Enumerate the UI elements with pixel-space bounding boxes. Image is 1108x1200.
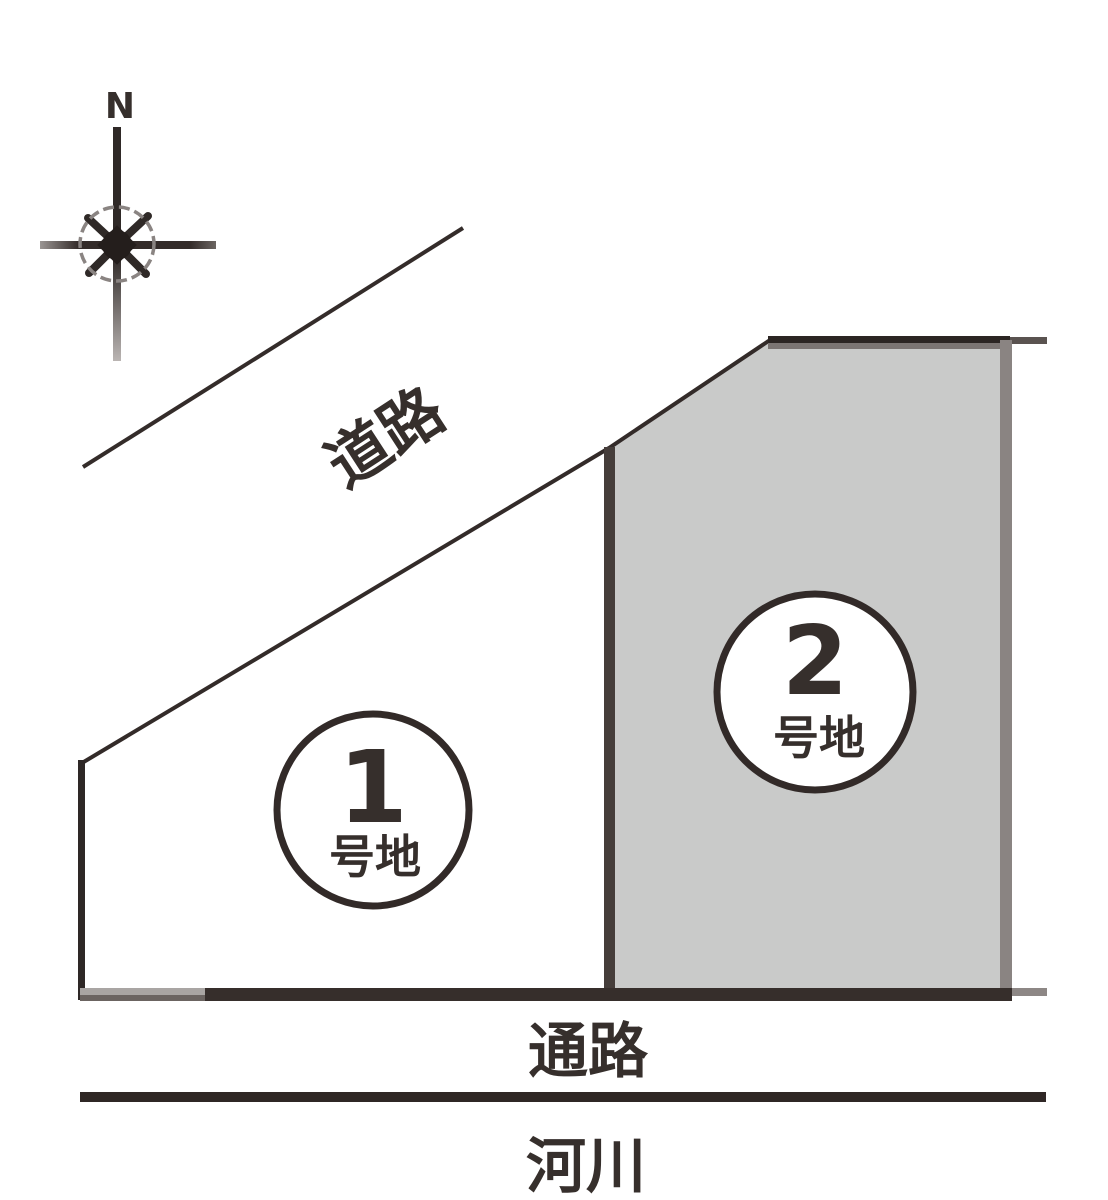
lot-layout-diagram: N 道路 xyxy=(0,0,1108,1200)
lot-1-badge: 1 号地 xyxy=(277,714,469,906)
bottom-border-overshoot xyxy=(1012,988,1047,996)
lot-2-top-border-overshoot xyxy=(1010,337,1047,344)
bottom-border-main xyxy=(205,988,1012,1001)
lot-2-right-border xyxy=(1000,340,1012,994)
bottom-border-left-dark xyxy=(80,995,210,1001)
compass-rose: N xyxy=(40,86,216,361)
lot-2-top-border xyxy=(768,336,1010,343)
compass-north-label: N xyxy=(105,86,135,127)
lot-divider-line xyxy=(604,447,615,1000)
lot-2-suffix: 号地 xyxy=(773,711,865,765)
lot-2-badge: 2 号地 xyxy=(717,594,913,790)
lot-1-number: 1 xyxy=(338,729,408,846)
river-label: 河川 xyxy=(526,1132,646,1200)
road-label: 道路 xyxy=(313,372,458,501)
lot-2-top-border-shadow xyxy=(768,343,1006,349)
lot-1-left-border xyxy=(78,760,85,1000)
diagram-canvas: N 道路 xyxy=(0,0,1108,1200)
passage-label: 通路 xyxy=(528,1017,649,1087)
river-boundary-line xyxy=(80,1092,1046,1102)
lot-1-suffix: 号地 xyxy=(329,830,421,884)
bottom-border-left-light xyxy=(80,988,210,995)
lot-2-number: 2 xyxy=(782,607,848,717)
